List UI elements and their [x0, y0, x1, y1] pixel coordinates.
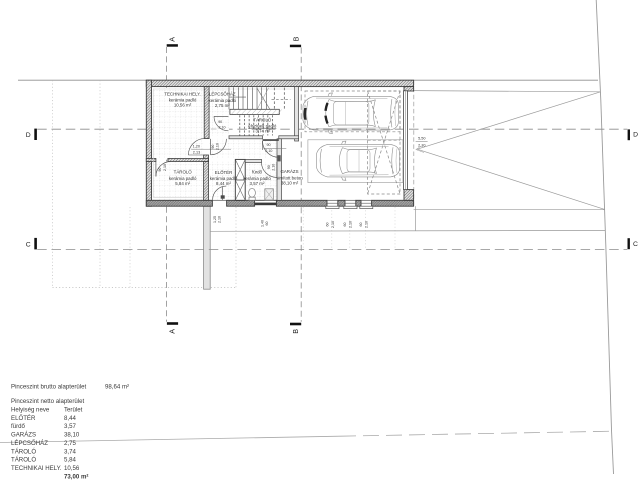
- svg-text:10,56: 10,56: [64, 465, 80, 472]
- svg-text:C: C: [633, 241, 638, 248]
- svg-text:10,56 m²: 10,56 m²: [174, 103, 192, 108]
- svg-text:A: A: [167, 329, 176, 334]
- svg-text:ELŐTÉR: ELŐTÉR: [215, 170, 233, 175]
- svg-text:98,64 m²: 98,64 m²: [105, 384, 129, 391]
- svg-text:B: B: [292, 36, 301, 41]
- svg-text:90: 90: [218, 120, 222, 124]
- svg-text:2,10: 2,10: [265, 149, 272, 153]
- svg-text:60: 60: [343, 223, 347, 227]
- svg-text:2,10: 2,10: [216, 143, 220, 150]
- svg-text:3,74: 3,74: [64, 448, 76, 455]
- svg-text:8,44 m²: 8,44 m²: [216, 181, 231, 186]
- svg-text:C: C: [26, 242, 31, 249]
- svg-text:TÁROLÓ: TÁROLÓ: [174, 170, 193, 175]
- svg-text:TECHNIKAI HELY.: TECHNIKAI HELY.: [164, 92, 200, 97]
- svg-text:D: D: [26, 132, 31, 139]
- svg-text:5,50: 5,50: [418, 137, 425, 141]
- svg-text:fürdő: fürdő: [11, 423, 26, 430]
- svg-text:1,25: 1,25: [213, 216, 217, 223]
- svg-text:38,10 m²: 38,10 m²: [281, 180, 299, 185]
- svg-text:73,00 m²: 73,00 m²: [64, 473, 88, 480]
- svg-text:2,75 m²: 2,75 m²: [215, 103, 230, 108]
- svg-text:60: 60: [359, 223, 363, 227]
- svg-text:60: 60: [325, 223, 329, 227]
- svg-text:2,75: 2,75: [64, 440, 76, 447]
- svg-text:TÁROLÓ: TÁROLÓ: [11, 448, 36, 455]
- svg-text:3,57: 3,57: [64, 423, 76, 430]
- svg-text:B: B: [291, 329, 300, 334]
- svg-text:fürdő: fürdő: [252, 170, 263, 175]
- svg-text:TÁROLÓ: TÁROLÓ: [253, 118, 272, 123]
- svg-text:ELŐTÉR: ELŐTÉR: [11, 415, 36, 422]
- svg-text:TÁROLÓ: TÁROLÓ: [11, 457, 36, 464]
- svg-text:5,84: 5,84: [64, 457, 76, 464]
- svg-text:2,10: 2,10: [331, 221, 335, 228]
- svg-text:8,44: 8,44: [64, 415, 76, 422]
- svg-text:GARÁZS: GARÁZS: [11, 432, 36, 439]
- svg-text:2,10: 2,10: [271, 164, 275, 171]
- svg-text:2,13: 2,13: [193, 151, 200, 155]
- svg-text:60: 60: [265, 222, 269, 226]
- svg-text:Pinceszint netto alapterület: Pinceszint netto alapterület: [11, 398, 84, 405]
- svg-text:1,20: 1,20: [193, 145, 200, 149]
- svg-text:90: 90: [267, 143, 271, 147]
- svg-text:2,10: 2,10: [219, 126, 226, 130]
- svg-text:3,57 m²: 3,57 m²: [250, 181, 265, 186]
- svg-text:2,10: 2,10: [364, 221, 368, 228]
- svg-text:LÉPCSŐHÁZ: LÉPCSŐHÁZ: [209, 92, 236, 97]
- svg-text:3,74 m²: 3,74 m²: [255, 129, 270, 134]
- svg-text:5,84 m²: 5,84 m²: [175, 181, 190, 186]
- svg-text:2,10: 2,10: [218, 216, 222, 223]
- svg-text:90: 90: [211, 145, 215, 149]
- svg-text:Pinceszint brutto alapterület: Pinceszint brutto alapterület: [11, 384, 87, 391]
- svg-text:Helyiség neve: Helyiség neve: [11, 407, 50, 414]
- svg-text:A: A: [167, 37, 176, 42]
- svg-text:2,10: 2,10: [163, 164, 167, 171]
- svg-text:LÉPCSŐHÁZ: LÉPCSŐHÁZ: [11, 440, 48, 447]
- svg-text:38,10: 38,10: [64, 432, 80, 439]
- svg-text:Terület: Terület: [64, 407, 83, 414]
- svg-text:D: D: [633, 131, 638, 138]
- svg-text:GARÁZS: GARÁZS: [280, 169, 298, 174]
- svg-text:2,10: 2,10: [348, 221, 352, 228]
- svg-text:90: 90: [158, 168, 162, 172]
- svg-text:TECHNIKAI HELY.: TECHNIKAI HELY.: [11, 465, 62, 472]
- svg-text:1,40: 1,40: [261, 220, 265, 227]
